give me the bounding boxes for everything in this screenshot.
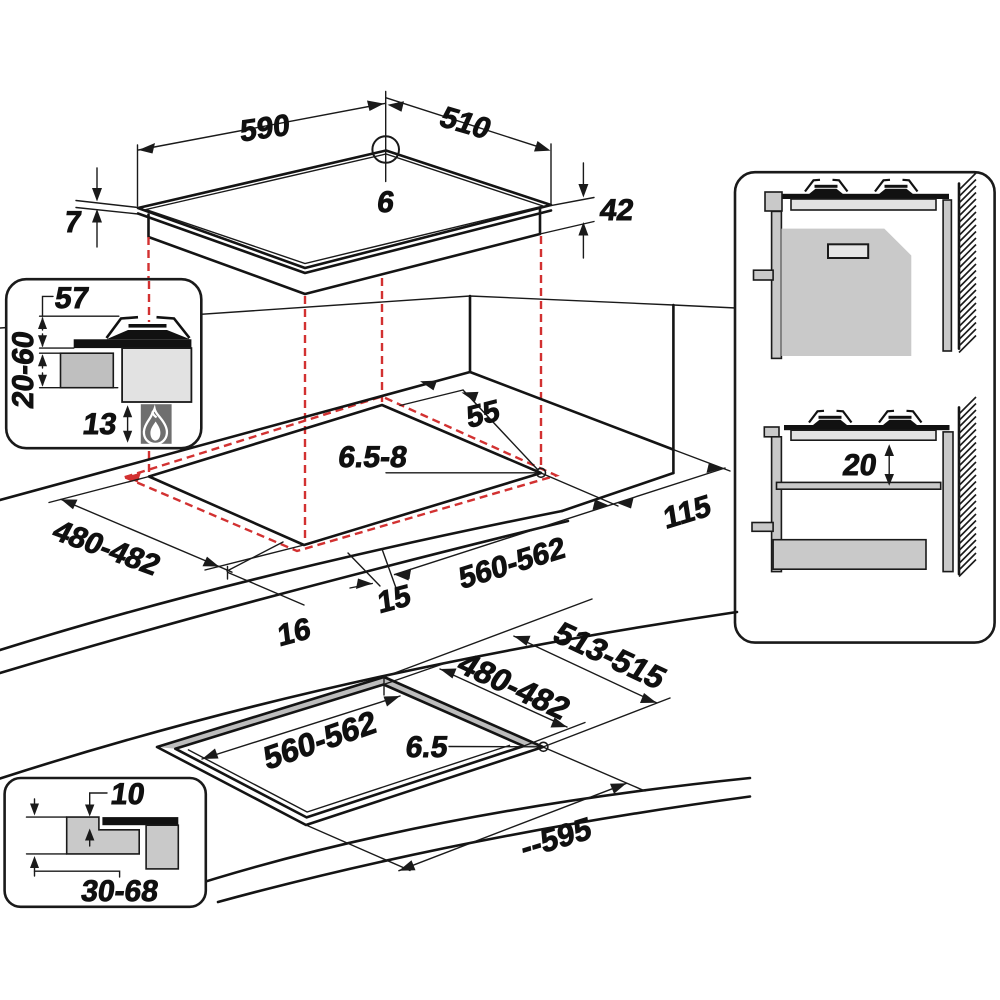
svg-text:42: 42: [598, 194, 636, 227]
svg-text:10: 10: [109, 778, 147, 811]
svg-text:20-60: 20-60: [7, 329, 40, 410]
svg-text:20: 20: [841, 449, 879, 482]
svg-text:13: 13: [81, 408, 119, 441]
svg-text:30-68: 30-68: [79, 875, 160, 908]
svg-text:57: 57: [53, 282, 91, 315]
svg-text:590: 590: [240, 109, 290, 149]
svg-text:6.5-8: 6.5-8: [336, 441, 409, 474]
svg-text:6.5: 6.5: [404, 731, 450, 764]
